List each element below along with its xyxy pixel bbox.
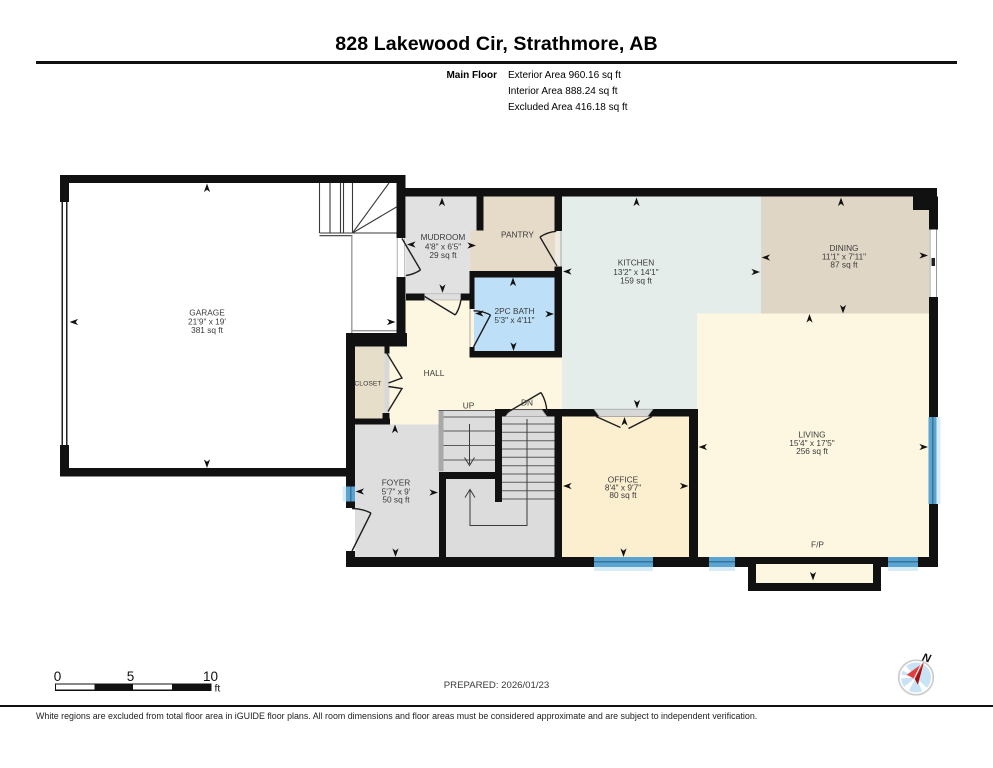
svg-text:5'3" x 4'11": 5'3" x 4'11" xyxy=(494,315,534,325)
svg-text:29 sq ft: 29 sq ft xyxy=(429,250,457,260)
svg-text:N: N xyxy=(921,652,933,666)
svg-text:50 sq ft: 50 sq ft xyxy=(382,495,410,505)
svg-text:CLOSET: CLOSET xyxy=(354,381,381,388)
svg-text:UP: UP xyxy=(463,401,475,411)
svg-text:159 sq ft: 159 sq ft xyxy=(620,276,653,286)
svg-text:80 sq ft: 80 sq ft xyxy=(609,490,637,500)
svg-text:87 sq ft: 87 sq ft xyxy=(830,260,858,270)
svg-text:KITCHEN: KITCHEN xyxy=(618,258,654,268)
svg-text:256 sq ft: 256 sq ft xyxy=(796,446,829,456)
svg-text:F/P: F/P xyxy=(811,540,824,550)
svg-text:DN: DN xyxy=(521,398,533,408)
svg-text:MUDROOM: MUDROOM xyxy=(421,232,466,242)
svg-text:PANTRY: PANTRY xyxy=(501,230,534,240)
svg-text:381 sq ft: 381 sq ft xyxy=(191,325,224,335)
svg-text:HALL: HALL xyxy=(424,368,445,378)
